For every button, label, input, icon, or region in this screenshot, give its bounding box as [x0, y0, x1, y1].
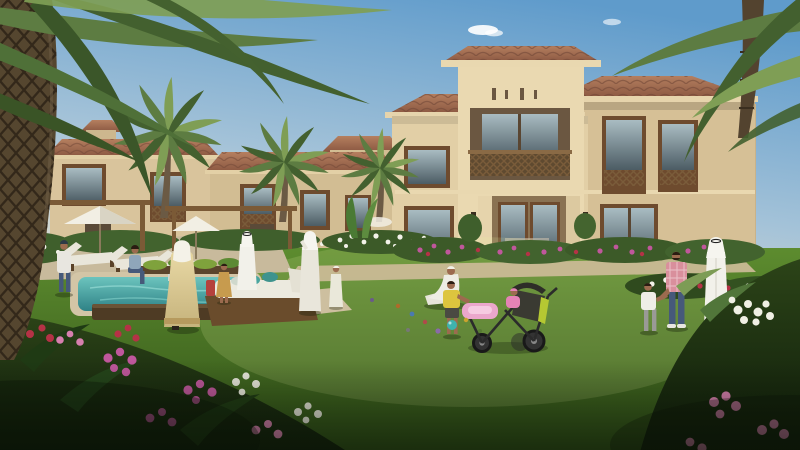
- leg: [225, 297, 228, 303]
- embroidered-hem: [164, 318, 200, 324]
- blue-top: [129, 255, 141, 269]
- yellow-shirt: [443, 290, 460, 308]
- tower-fascia: [441, 60, 601, 67]
- leg: [66, 272, 71, 292]
- umbrella-pole: [99, 224, 101, 258]
- small-ball: [478, 329, 482, 333]
- shadow: [443, 335, 461, 340]
- cloud: [603, 19, 621, 25]
- shadow: [640, 331, 658, 336]
- balustrade-rail: [468, 150, 572, 154]
- pergola-beam: [165, 206, 297, 211]
- white-tshirt: [641, 292, 656, 310]
- white-thobe: [237, 244, 257, 290]
- red-towel: [206, 280, 215, 296]
- white-headscarf: [173, 240, 191, 262]
- scene-canvas: [0, 0, 800, 450]
- grey-trouser-leg: [644, 309, 648, 331]
- leg: [220, 297, 223, 303]
- window-glass: [66, 168, 102, 202]
- window-glass: [662, 124, 694, 170]
- tower-balcony: [468, 108, 572, 180]
- villa-garden-render: Photorealistic architectural rendering: …: [0, 0, 800, 450]
- small-ball: [406, 328, 410, 332]
- right-wing-eave-shadow: [580, 102, 755, 110]
- pergola-post: [288, 211, 292, 249]
- cloud: [485, 30, 503, 37]
- jeans-shin: [140, 271, 145, 284]
- tower-roof-tiles: [443, 46, 600, 62]
- pink-pod-inner: [468, 306, 492, 314]
- window-glass: [304, 194, 326, 226]
- small-ball: [396, 304, 400, 308]
- parapet-slot: [492, 88, 496, 100]
- small-ball: [370, 298, 374, 302]
- parapet-slot: [505, 90, 508, 99]
- small-ball: [423, 320, 427, 324]
- teal-ball: [447, 320, 457, 330]
- shoe: [172, 326, 179, 330]
- window-glass: [408, 150, 446, 184]
- string-course: [395, 190, 755, 194]
- white-thobe: [329, 274, 343, 307]
- window-glass: [606, 120, 642, 170]
- shoe: [677, 324, 686, 328]
- small-ball: [464, 318, 468, 322]
- parapet-slot: [534, 90, 537, 99]
- parapet-slot: [520, 88, 524, 100]
- umbrella-pole: [195, 231, 197, 259]
- small-ball: [410, 312, 415, 317]
- jeans-leg: [669, 290, 676, 325]
- grey-trouser-leg: [652, 309, 656, 331]
- juliet-lattice: [660, 170, 696, 185]
- leg: [59, 272, 64, 292]
- juliet-lattice: [604, 170, 644, 186]
- shadow: [217, 301, 231, 305]
- pergola-post: [140, 205, 145, 251]
- green-pillow: [193, 259, 217, 269]
- shoe: [667, 324, 676, 328]
- shrub: [574, 213, 596, 239]
- shrub: [458, 214, 482, 242]
- pink-outfit: [506, 296, 520, 308]
- ball-highlight: [449, 322, 452, 325]
- balustrade-lattice: [470, 152, 570, 176]
- pale-robe: [299, 247, 321, 311]
- shadow: [55, 293, 73, 298]
- shadow: [167, 326, 199, 334]
- teal-pillow: [262, 272, 278, 282]
- green-pillow: [143, 260, 167, 270]
- small-ball: [435, 328, 440, 333]
- jacket: [57, 251, 71, 273]
